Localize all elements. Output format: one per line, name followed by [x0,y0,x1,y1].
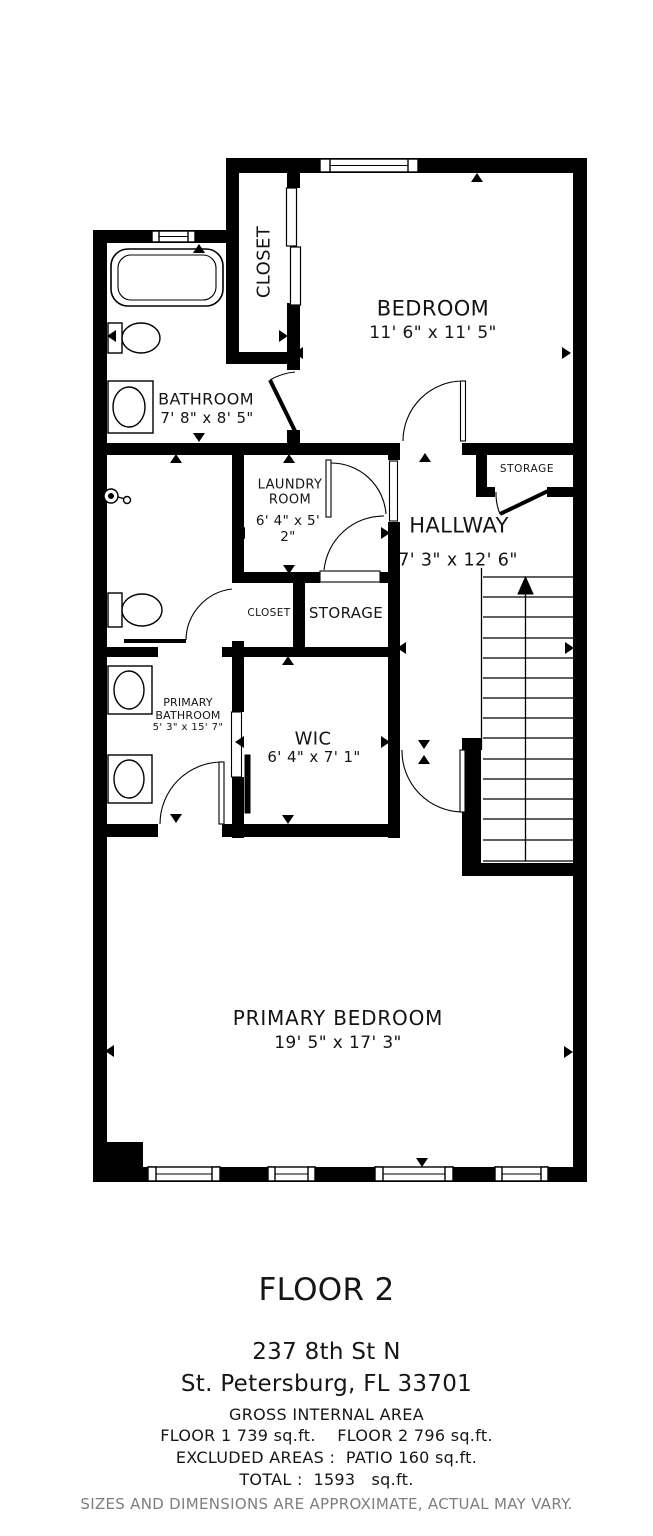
sink-icon [108,666,152,714]
door-icon [270,372,295,431]
room-label-storage-mid: STORAGE [309,605,383,623]
door-icon [320,516,384,582]
window-icon [320,159,418,172]
room-label-laundry: LAUNDRY ROOM [244,478,336,509]
area-line3: TOTAL : 1593 sq.ft. [0,1470,653,1489]
room-label-primary-bedroom: PRIMARY BEDROOM [233,1007,443,1031]
room-dims-hallway: 7' 3" x 12' 6" [398,551,518,572]
room-label-storage-hall: STORAGE [500,463,554,475]
door-icon [402,750,465,812]
room-dims-bedroom: 11' 6" x 11' 5" [369,323,497,343]
door-icon [326,460,398,521]
window-icon [152,231,195,242]
area-header: GROSS INTERNAL AREA [0,1405,653,1424]
disclaimer-text: SIZES AND DIMENSIONS ARE APPROXIMATE, AC… [0,1495,653,1513]
sliding-door-icon [287,188,301,305]
area-line2: EXCLUDED AREAS : PATIO 160 sq.ft. [0,1448,653,1467]
toilet-icon [108,593,162,627]
stairs-up-arrow-icon [518,577,533,594]
room-dims-primary-bedroom: 19' 5" x 17' 3" [274,1033,402,1053]
room-dims-wic: 6' 4" x 7' 1" [267,749,360,767]
door-icon [496,491,548,514]
area-line1: FLOOR 1 739 sq.ft. FLOOR 2 796 sq.ft. [0,1426,653,1445]
room-dims-primary-bathroom: 5' 3" x 15' 7" [153,722,224,734]
window-icon [268,1167,315,1181]
door-icon [160,762,224,824]
window-icon [495,1167,548,1181]
room-label-bathroom: BATHROOM [158,391,254,410]
room-label-closet-small: CLOSET [247,607,290,619]
room-label-hallway: HALLWAY [409,514,509,539]
room-label-wic: WIC [295,728,332,749]
stairs [482,568,574,861]
sink-icon [108,381,153,433]
room-dims-bathroom: 7' 8" x 8' 5" [160,410,253,428]
sink-icon [108,755,152,803]
room-dims-laundry: 6' 4" x 5' 2" [249,514,327,546]
address-line2: St. Petersburg, FL 33701 [0,1371,653,1397]
floorplan-page: BEDROOM 11' 6" x 11' 5" BATHROOM 7' 8" x… [0,0,653,1536]
floor-title: FLOOR 2 [0,1272,653,1308]
bathtub-icon [111,249,223,306]
window-icon [375,1167,453,1181]
door-icon [403,381,466,441]
room-label-primary-bathroom: PRIMARY BATHROOM [148,697,228,723]
room-label-closet-upper: CLOSET [253,226,274,298]
room-label-bedroom: BEDROOM [377,297,489,322]
address-line1: 237 8th St N [0,1339,653,1365]
window-icon [148,1167,220,1181]
shower-valve-icon [104,489,131,504]
